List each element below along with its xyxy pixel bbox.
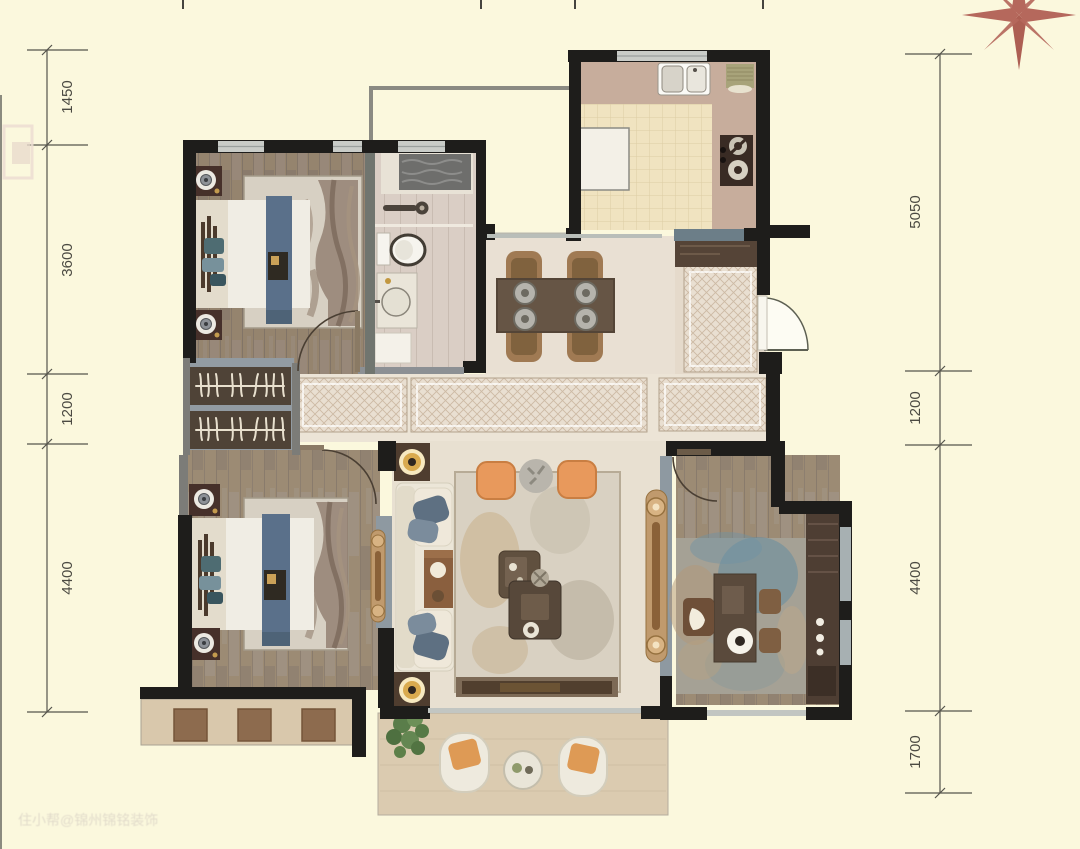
svg-text:1700: 1700 (907, 735, 924, 768)
svg-text:住小帮@锦州锦铭装饰: 住小帮@锦州锦铭装饰 (18, 812, 158, 828)
svg-text:1200: 1200 (907, 391, 924, 424)
svg-text:4400: 4400 (59, 561, 76, 594)
svg-text:1200: 1200 (59, 392, 76, 425)
svg-text:4400: 4400 (907, 561, 924, 594)
svg-text:1450: 1450 (59, 80, 76, 113)
svg-text:3600: 3600 (59, 243, 76, 276)
svg-text:5050: 5050 (907, 195, 924, 228)
